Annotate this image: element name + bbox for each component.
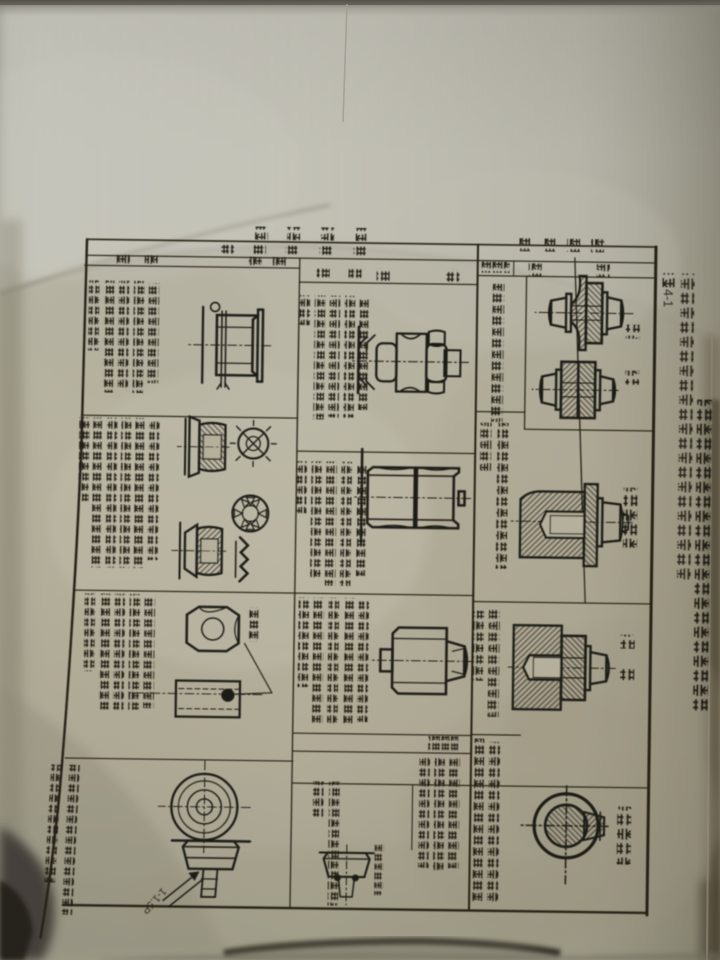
svg-text:4-1: 4-1 xyxy=(661,289,675,307)
